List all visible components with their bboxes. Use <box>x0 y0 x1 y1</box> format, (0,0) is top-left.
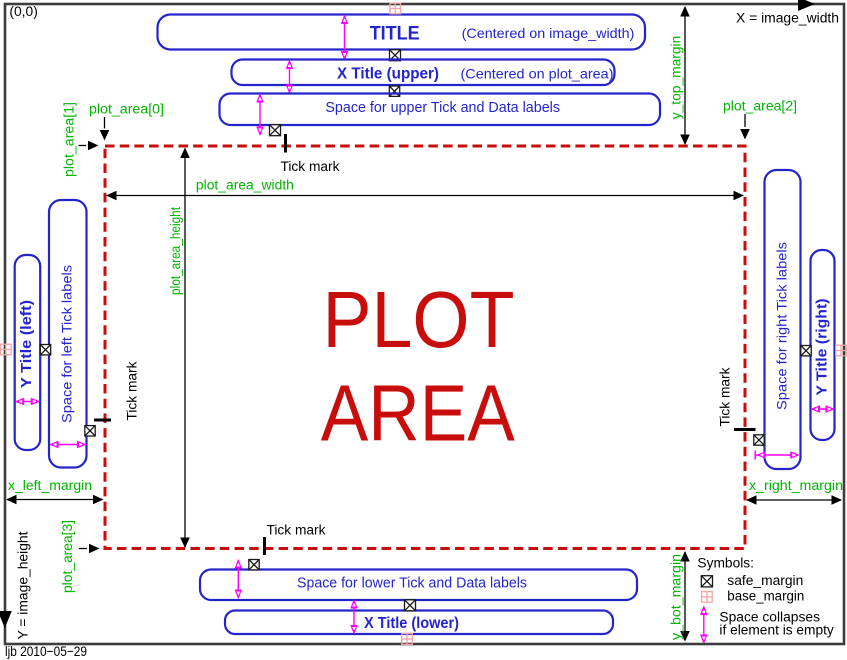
svg-text:plot_area[1]: plot_area[1] <box>62 102 78 177</box>
svg-text:(Centered on plot_area): (Centered on plot_area) <box>461 66 614 82</box>
svg-text:X = image_width: X = image_width <box>736 11 839 27</box>
svg-text:ljb 2010−05−29: ljb 2010−05−29 <box>5 644 87 660</box>
svg-text:Y = image_height: Y = image_height <box>15 531 31 639</box>
svg-text:Symbols:: Symbols: <box>697 556 754 572</box>
svg-text:X Title (lower): X Title (lower) <box>364 615 459 632</box>
svg-text:Y Title (right): Y Title (right) <box>814 299 831 396</box>
svg-text:Y Title (left): Y Title (left) <box>18 300 35 388</box>
svg-text:y_top_margin: y_top_margin <box>669 36 685 120</box>
svg-text:(0,0): (0,0) <box>9 4 37 20</box>
svg-text:plot_area[2]: plot_area[2] <box>723 99 797 115</box>
svg-text:if element is empty: if element is empty <box>719 623 834 639</box>
svg-text:safe_margin: safe_margin <box>727 573 803 589</box>
svg-text:Space for lower Tick and Data: Space for lower Tick and Data labels <box>297 576 527 592</box>
svg-text:y_bot_margin: y_bot_margin <box>669 554 685 640</box>
svg-text:Space for left Tick labels: Space for left Tick labels <box>60 265 76 423</box>
svg-text:Tick mark: Tick mark <box>124 361 140 421</box>
svg-text:Tick mark: Tick mark <box>267 523 327 539</box>
svg-text:Space for upper Tick and Data: Space for upper Tick and Data labels <box>325 100 560 116</box>
svg-text:plot_area[0]: plot_area[0] <box>89 102 164 118</box>
svg-text:plot_area[3]: plot_area[3] <box>60 520 76 593</box>
svg-text:x_left_margin: x_left_margin <box>8 478 92 494</box>
svg-text:PLOT: PLOT <box>323 275 515 364</box>
svg-text:Tick mark: Tick mark <box>717 367 733 427</box>
svg-text:AREA: AREA <box>321 369 515 458</box>
svg-text:X Title (upper): X Title (upper) <box>337 66 439 83</box>
svg-text:base_margin: base_margin <box>727 588 804 604</box>
svg-text:plot_area_height: plot_area_height <box>168 207 184 295</box>
svg-text:plot_area_width: plot_area_width <box>196 177 294 193</box>
svg-text:(Centered on image_width): (Centered on image_width) <box>462 25 635 41</box>
svg-text:x_right_margin: x_right_margin <box>749 478 843 494</box>
svg-text:TITLE: TITLE <box>370 23 420 45</box>
svg-text:Space for right Tick labels: Space for right Tick labels <box>775 242 791 410</box>
svg-text:Tick mark: Tick mark <box>281 159 341 175</box>
